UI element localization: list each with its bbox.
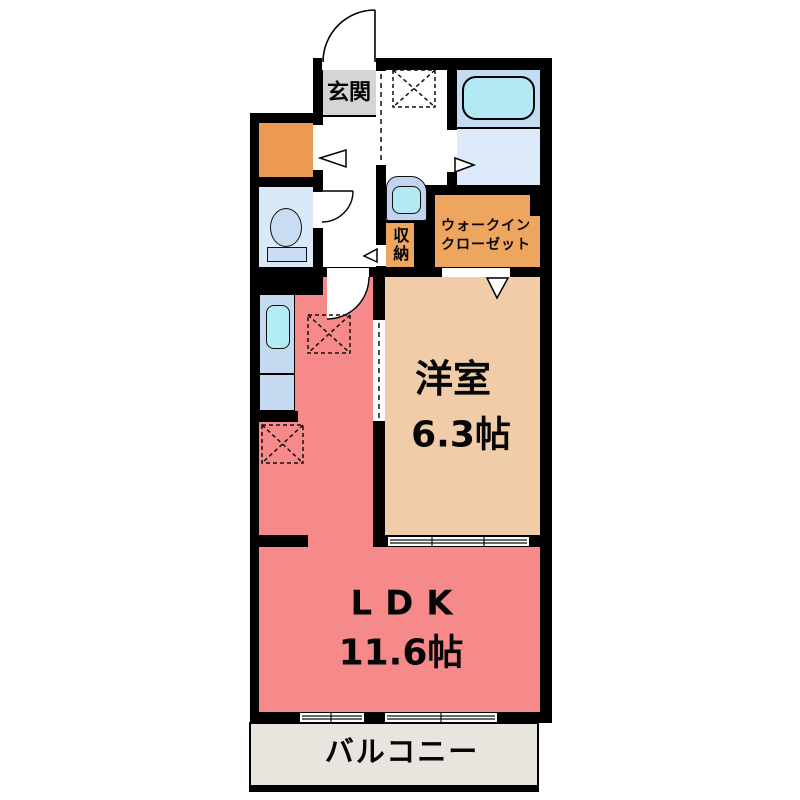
wall-outer-left xyxy=(250,113,259,723)
toilet-icon xyxy=(270,208,302,247)
toilet-tank-icon xyxy=(267,247,307,262)
bedroom-area xyxy=(385,277,540,535)
bedroom-sliding-door-west xyxy=(373,320,385,421)
ldk-door-opening xyxy=(327,268,369,277)
entry-closet-area xyxy=(259,123,313,177)
balcony-window-east xyxy=(385,713,497,722)
balcony-edge-bar xyxy=(249,787,539,792)
bedroom-size-label: 6.3帖 xyxy=(411,414,511,455)
walk-in-closet-label-line2: クローゼット xyxy=(441,236,531,255)
balcony-label: バルコニー xyxy=(325,735,479,768)
bedroom-label: 洋室 xyxy=(415,358,491,402)
ldk-size-label: 11.6帖 xyxy=(339,632,464,673)
wall-wic-notch xyxy=(530,195,540,216)
entrance-door-opening xyxy=(322,58,376,70)
wall-ldk-stub xyxy=(250,535,308,547)
floor-plan: 玄関 ウォークイン クローゼット 収納 洋室 6.3帖 LDK 11.6帖 バル… xyxy=(0,0,800,800)
washbasin-bowl-icon xyxy=(392,186,421,214)
wall-outer-right xyxy=(540,58,552,723)
toilet-door-swing-fill xyxy=(322,191,353,222)
entry-closet-door-triangle-icon xyxy=(320,150,346,167)
toilet-door-swing-arc-icon xyxy=(322,191,353,222)
walk-in-closet-label-line1: ウォークイン xyxy=(441,217,531,236)
bathtub-icon xyxy=(462,76,535,120)
entrance-door-swing-arc-icon xyxy=(323,10,375,62)
washroom-sliding-door xyxy=(376,71,386,165)
ldk-label: LDK xyxy=(351,584,466,623)
bath-floor-area xyxy=(457,128,540,185)
wall-closet-toilet xyxy=(250,177,322,187)
bath-door-opening xyxy=(447,130,457,172)
tub-zone-divider xyxy=(457,127,540,129)
wall-counter-stub xyxy=(259,411,298,422)
toilet-door-opening xyxy=(313,192,323,228)
washer-space-dashed-box-icon xyxy=(393,70,435,107)
bedroom-entry-opening xyxy=(442,268,510,277)
wall-leftcol-top xyxy=(250,113,322,123)
wall-below-bath xyxy=(435,185,552,195)
storage-label: 収納 xyxy=(390,227,408,263)
entry-closet-door-opening xyxy=(313,125,323,170)
ldk-area-main xyxy=(373,547,540,712)
bedroom-sliding-door-south xyxy=(388,537,529,546)
balcony-window-west xyxy=(300,713,364,722)
walk-in-closet-label: ウォークイン クローゼット xyxy=(441,217,531,255)
storage-door-opening xyxy=(376,245,386,266)
kitchen-sink-icon xyxy=(266,305,290,349)
genkan-label: 玄関 xyxy=(327,80,371,105)
counter-divider xyxy=(259,373,295,375)
